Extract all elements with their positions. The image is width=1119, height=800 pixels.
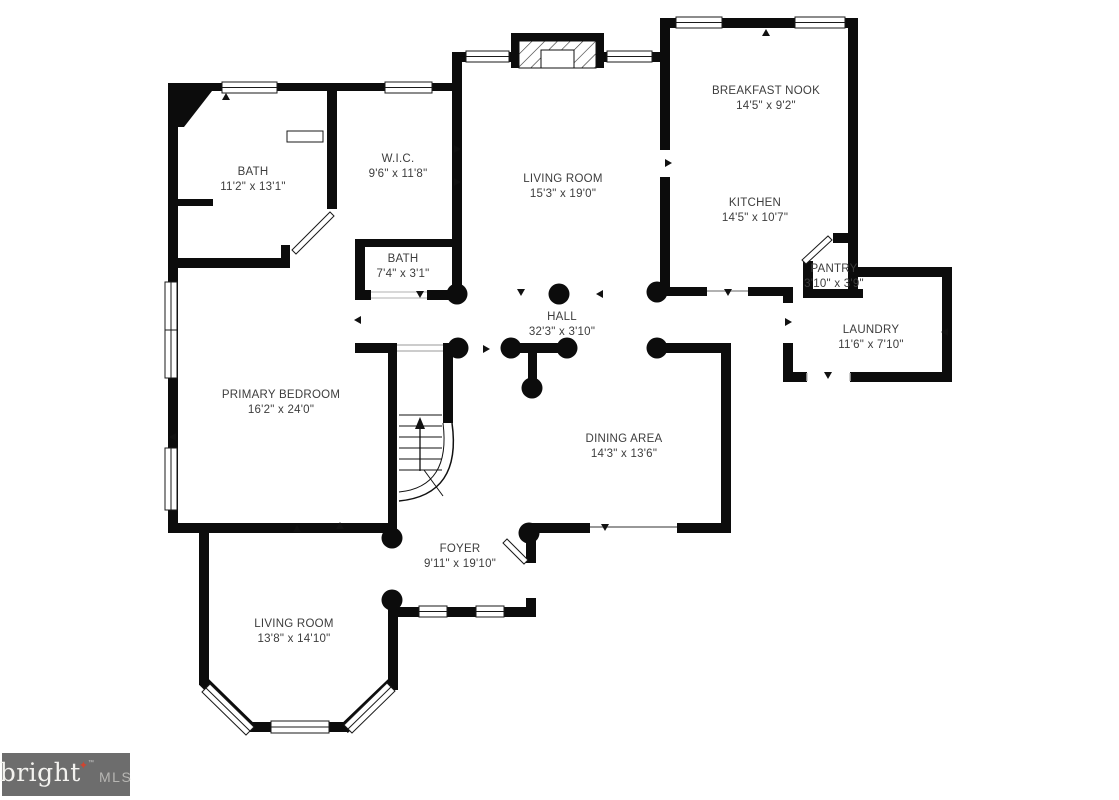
- window-livingroom-right: [607, 51, 652, 62]
- window-bay-center: [271, 721, 329, 733]
- room-label-laundry: LAUNDRY 11'6" x 7'10": [838, 323, 903, 352]
- doors-layer: [292, 212, 832, 564]
- room-label-bath-hall: BATH 7'4" x 3'1": [376, 252, 429, 281]
- room-label-breakfast-nook: BREAKFAST NOOK 14'5" x 9'2": [712, 84, 820, 113]
- door-pantry: [802, 236, 832, 264]
- window-wic-top: [385, 82, 432, 93]
- stair-rail-outer: [399, 423, 453, 501]
- floor-plan-drawing: [0, 0, 1119, 800]
- room-label-kitchen: KITCHEN 14'5" x 10'7": [722, 196, 788, 225]
- brightmls-star-icon: ✦: [79, 759, 88, 772]
- window-bay-right: [344, 683, 395, 733]
- stair-arrow-head: [415, 417, 425, 429]
- room-label-bath-primary: BATH 11'2" x 13'1": [220, 165, 285, 194]
- window-bath-top: [222, 82, 277, 93]
- window-nook-left: [676, 17, 722, 28]
- window-bedroom-lower: [165, 448, 177, 510]
- brightmls-logo-suffix: MLS: [99, 769, 132, 785]
- room-label-foyer: FOYER 9'11" x 19'10": [424, 542, 496, 571]
- room-label-living-room-lower: LIVING ROOM 13'8" x 14'10": [254, 617, 333, 646]
- door-entry: [503, 539, 528, 564]
- bath-shelf: [287, 131, 323, 142]
- room-label-living-room-upper: LIVING ROOM 15'3" x 19'0": [523, 172, 602, 201]
- room-label-dining-area: DINING AREA 14'3" x 13'6": [586, 432, 663, 461]
- window-foyer-right: [476, 606, 504, 617]
- window-foyer-left: [419, 606, 447, 617]
- stair-rail-inner: [399, 423, 444, 492]
- window-livingroom-left: [466, 51, 509, 62]
- room-label-hall: HALL 32'3" x 3'10": [529, 310, 595, 339]
- room-label-pantry: PANTRY 3'10" x 3'9": [804, 262, 864, 291]
- room-label-wic: W.I.C. 9'6" x 11'8": [369, 152, 428, 181]
- opening-lines: [371, 291, 850, 527]
- window-bedroom-upper: [165, 282, 177, 378]
- door-bath-primary: [292, 212, 334, 254]
- brightmls-tm: ™: [88, 760, 94, 766]
- room-label-primary-bedroom: PRIMARY BEDROOM 16'2" x 24'0": [222, 388, 340, 417]
- window-bay-left: [202, 684, 254, 735]
- window-nook-right: [795, 17, 845, 28]
- fireplace: [519, 41, 596, 68]
- brightmls-logo: bright✦™MLS: [2, 753, 130, 796]
- firebox: [541, 50, 574, 68]
- floor-plan-page: BATH 11'2" x 13'1" W.I.C. 9'6" x 11'8" L…: [0, 0, 1119, 800]
- staircase: [399, 415, 453, 501]
- brightmls-logo-brand: bright: [0, 758, 81, 787]
